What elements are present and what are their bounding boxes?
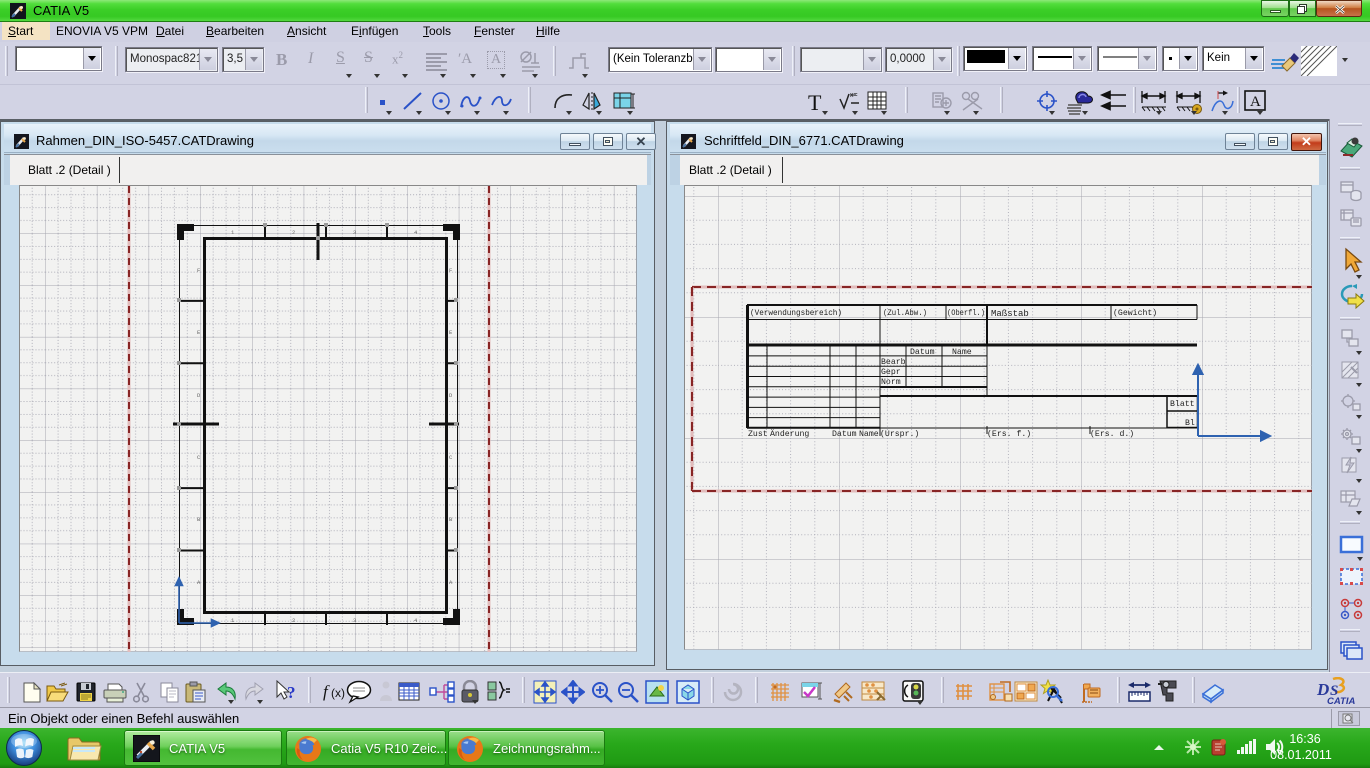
- svg-text:2: 2: [292, 617, 295, 624]
- svg-text:Norm: Norm: [881, 378, 901, 387]
- svg-text:F: F: [449, 267, 452, 274]
- svg-text:Änderung: Änderung: [770, 429, 809, 439]
- svg-text:A: A: [1250, 94, 1261, 110]
- svg-text:?: ?: [287, 683, 296, 702]
- svg-text:x=: x=: [850, 92, 858, 99]
- svg-text:Blatt: Blatt: [1170, 399, 1195, 409]
- svg-text:Name: Name: [859, 430, 879, 439]
- svg-text:f: f: [323, 682, 330, 701]
- svg-text:Datum: Datum: [832, 430, 857, 439]
- svg-text:(Oberfl.): (Oberfl.): [947, 308, 985, 318]
- svg-text:F: F: [197, 267, 200, 274]
- svg-text:(Verwendungsbereich): (Verwendungsbereich): [750, 308, 842, 318]
- svg-text:2: 2: [292, 229, 295, 236]
- svg-text:Gepr: Gepr: [881, 368, 901, 377]
- svg-text:(Ers. d.): (Ers. d.): [1090, 429, 1134, 439]
- svg-text:CATIA: CATIA: [1327, 696, 1355, 705]
- svg-text:Maßstab: Maßstab: [991, 309, 1029, 319]
- svg-text:Zust: Zust: [748, 430, 768, 439]
- svg-text:Datum: Datum: [910, 348, 935, 357]
- svg-text:Name: Name: [952, 348, 972, 357]
- svg-text:3: 3: [353, 229, 356, 236]
- svg-text:3: 3: [353, 617, 356, 624]
- svg-text:(Urspr.): (Urspr.): [880, 429, 919, 439]
- svg-text:(Ers. f.): (Ers. f.): [987, 429, 1031, 439]
- svg-text:(Gewicht): (Gewicht): [1113, 308, 1157, 318]
- svg-text:(Zul.Abw.): (Zul.Abw.): [883, 308, 927, 318]
- svg-text:Bearb: Bearb: [881, 357, 906, 367]
- svg-text:(x): (x): [331, 686, 345, 700]
